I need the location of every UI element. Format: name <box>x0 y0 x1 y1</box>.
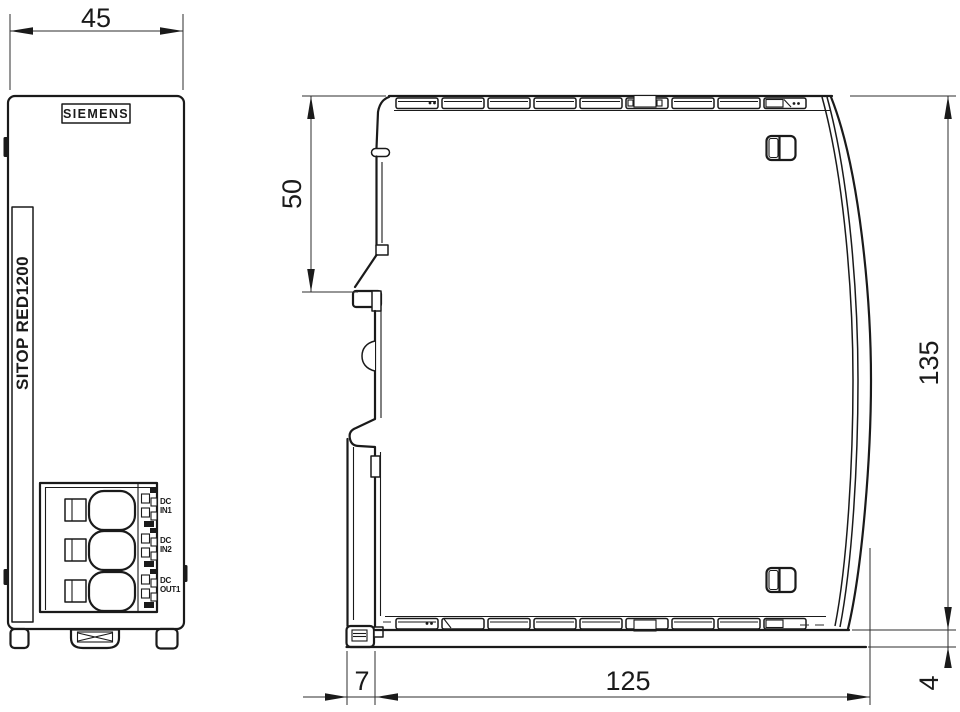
arrowhead-right-icon <box>325 693 347 701</box>
product-label-text: SITOP RED1200 <box>13 256 32 390</box>
vent-slot <box>718 98 760 109</box>
dim-base-label: 4 <box>914 675 944 690</box>
dim-width-label: 45 <box>81 3 111 33</box>
siemens-logo: SIEMENS <box>62 104 130 123</box>
terminal-block: DC IN1 DC IN2 DC OUT1 <box>40 483 181 612</box>
product-label-strip: SITOP RED1200 <box>12 207 33 622</box>
arrowhead-down-icon <box>944 607 952 630</box>
terminal-label-dc-in1-l1: DC <box>160 497 171 506</box>
front-clip-bottom <box>767 568 796 592</box>
rail-catch-hook <box>350 419 375 447</box>
arrowhead-up-icon <box>944 647 952 668</box>
terminal-screw-opening <box>89 491 135 530</box>
left-edge-notch-lower-icon <box>4 569 9 585</box>
din-rail-latch <box>71 630 119 649</box>
terminal-label-dc-in2-l1: DC <box>160 536 171 545</box>
vent-slot <box>580 619 622 630</box>
terminal-screw-opening <box>89 531 135 570</box>
vent-slot <box>488 619 530 630</box>
latch-tab-icon <box>634 96 656 108</box>
rail-release-bump <box>362 341 375 371</box>
side-view: 50 135 4 7 125 <box>277 96 956 706</box>
arrowhead-up-icon <box>307 96 315 119</box>
curved-front-face <box>822 97 871 629</box>
dim-depth-label: 125 <box>605 666 650 696</box>
terminal-label-dc-in1-l2: IN1 <box>160 506 172 515</box>
vent-slot <box>488 98 530 109</box>
vent-slot <box>672 98 714 109</box>
dimension-width-45: 45 <box>10 3 183 90</box>
vent-slots-top <box>396 96 806 109</box>
arrowhead-right-icon <box>160 27 183 35</box>
front-view: SIEMENS SITOP RED1200 <box>4 3 188 649</box>
terminal-label-dc-in2-l2: IN2 <box>160 545 172 554</box>
vent-slot <box>396 98 438 109</box>
vent-slot <box>534 98 576 109</box>
rear-din-rail-profile <box>347 97 390 647</box>
front-clip-top <box>767 136 796 160</box>
dim-height-label: 135 <box>914 340 944 385</box>
terminal-clamp-window <box>65 539 86 561</box>
vent-slot <box>672 619 714 630</box>
arrowhead-left-icon <box>376 693 398 701</box>
arrowhead-left-icon <box>10 27 33 35</box>
dimension-height-135: 135 <box>850 96 956 630</box>
dimension-base-4: 4 <box>852 630 956 691</box>
dim-rail-offset-label: 50 <box>277 179 307 209</box>
left-edge-notch-icon <box>4 137 9 157</box>
rail-pin-icon <box>372 149 390 157</box>
arrowhead-right-icon <box>847 693 870 701</box>
arrowhead-down-icon <box>307 269 315 292</box>
dimensional-drawing-page: SIEMENS SITOP RED1200 <box>0 0 960 712</box>
mounting-foot-right <box>157 629 178 649</box>
terminal-clamp-window <box>65 580 86 602</box>
terminal-screw-opening <box>89 572 135 611</box>
vent-slot <box>580 98 622 109</box>
right-edge-notch-icon <box>184 565 188 582</box>
mounting-foot-left <box>11 629 29 648</box>
drawing-canvas: SIEMENS SITOP RED1200 <box>0 0 960 712</box>
arrowhead-up-icon <box>944 96 952 119</box>
terminal-label-dc-out1-l2: OUT1 <box>160 585 181 594</box>
dim-rail-recess-label: 7 <box>354 666 369 696</box>
brand-logo-text: SIEMENS <box>63 107 129 121</box>
terminal-label-dc-out1-l1: DC <box>160 576 171 585</box>
vent-slot <box>442 98 484 109</box>
vent-slot <box>718 619 760 630</box>
terminal-clamp-window <box>65 499 86 521</box>
dimension-rail-offset-50: 50 <box>277 96 386 292</box>
vent-slot <box>534 619 576 630</box>
